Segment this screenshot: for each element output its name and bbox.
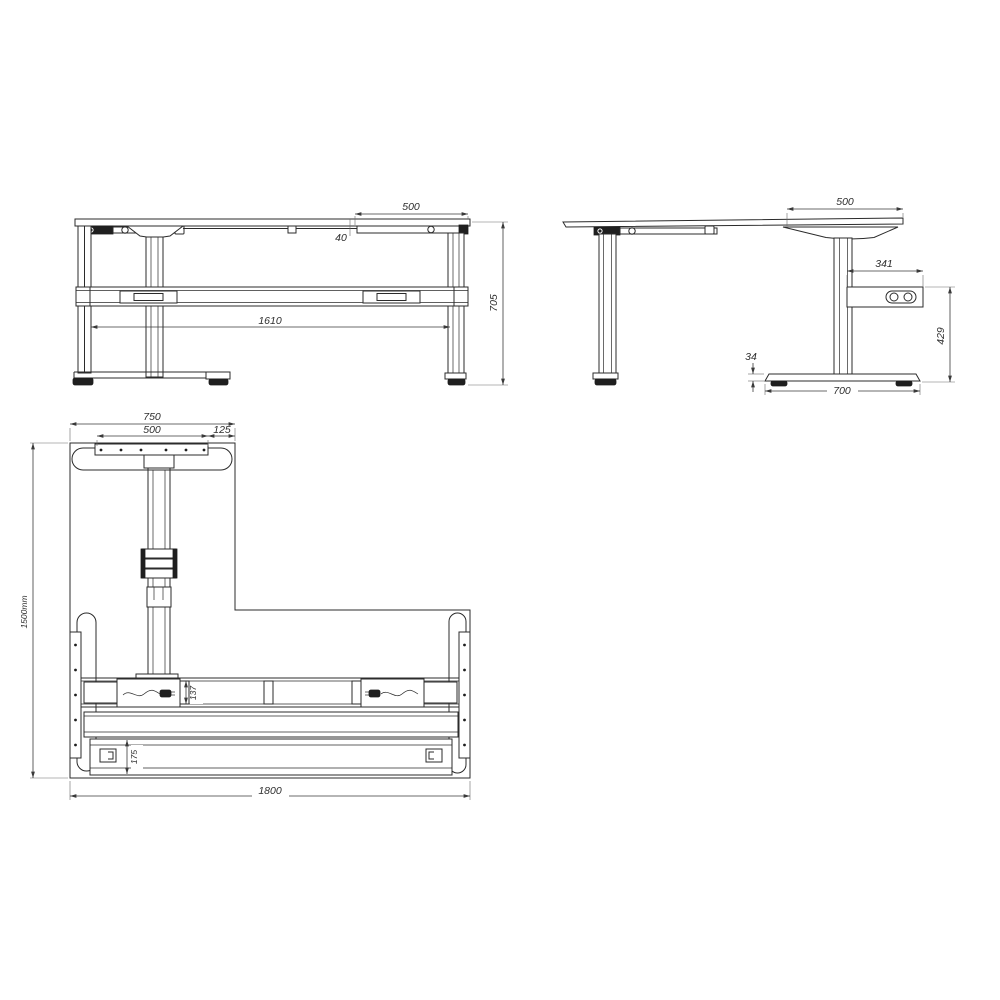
dim-label-front-top-overhang: 500 — [402, 201, 420, 213]
plan-mounting-plate — [95, 444, 208, 455]
plug-icon — [369, 690, 380, 697]
side-view: 500 341 429 34 700 — [563, 196, 955, 397]
dim-label-plan-mounting-plate: 500 — [143, 424, 161, 436]
front-right-handle — [363, 291, 420, 303]
dim-label-plan-depth: 1500mm — [19, 595, 29, 628]
dim-label-front-frame-width: 1610 — [258, 315, 282, 327]
side-rail-clip — [705, 226, 714, 234]
plan-right-rail — [459, 632, 470, 758]
side-control-box — [847, 287, 923, 307]
plan-view: 750 500 125 1500mm 1800 137 — [19, 411, 470, 800]
dim-label-side-foot-height: 34 — [745, 351, 757, 363]
dim-label-plan-width: 1800 — [258, 785, 282, 797]
front-right-rail — [357, 226, 467, 233]
side-dim-429: 429 — [922, 287, 955, 382]
drawing-canvas: 500 40 1610 705 — [0, 0, 1000, 1000]
dim-label-side-foot-length: 700 — [833, 385, 851, 397]
side-left-leg — [599, 234, 616, 373]
plan-dim-1500: 1500mm — [19, 443, 68, 778]
plan-left-rail — [70, 632, 81, 758]
dim-label-front-height: 705 — [488, 294, 500, 312]
plan-support-rail — [84, 712, 458, 737]
dim-label-plan-beam-depth: 137 — [188, 686, 198, 700]
front-mid-clip — [288, 226, 296, 233]
front-middle-leg — [146, 237, 163, 377]
side-wing-bracket — [783, 227, 898, 239]
front-desktop — [75, 219, 470, 226]
plug-icon — [160, 690, 171, 697]
front-dim-1610: 1610 — [91, 315, 450, 327]
front-wing-bracket — [127, 226, 183, 238]
front-dim-705: 705 — [468, 222, 508, 385]
plan-right-motor — [361, 679, 424, 707]
dim-label-front-offset: 40 — [335, 232, 347, 244]
dim-label-plan-edge-offset: 125 — [213, 424, 231, 436]
side-left-foot — [593, 373, 618, 385]
side-desktop — [563, 218, 903, 227]
front-right-foot — [445, 373, 466, 385]
dim-label-side-box-to-floor: 429 — [935, 327, 947, 345]
dim-label-plan-foot-bracket: 750 — [143, 411, 161, 423]
dim-label-side-control-box-width: 341 — [875, 258, 893, 270]
technical-drawing: 500 40 1610 705 — [0, 0, 1000, 1000]
plan-bottom-rail — [90, 739, 452, 775]
plan-dim-1800: 1800 — [70, 781, 470, 800]
plan-left-motor — [117, 679, 180, 707]
plan-dim-125: 125 — [208, 424, 235, 436]
front-left-handle — [120, 291, 177, 303]
plan-column — [136, 455, 178, 684]
dim-label-plan-rail-depth: 175 — [129, 750, 139, 764]
side-dim-34: 34 — [745, 351, 764, 392]
side-dim-341: 341 — [847, 258, 923, 287]
dim-label-side-top-depth: 500 — [836, 196, 854, 208]
front-view: 500 40 1610 705 — [73, 201, 508, 385]
